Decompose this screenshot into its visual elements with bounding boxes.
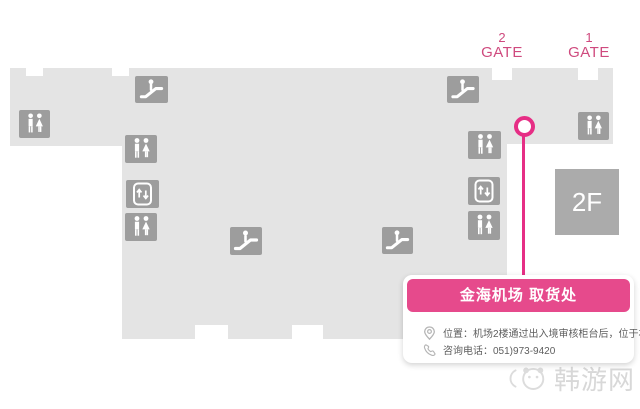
escalator-icon bbox=[382, 227, 413, 254]
phone-text: 咨询电话：051)973-9420 bbox=[443, 342, 555, 357]
elevator-icon bbox=[468, 177, 500, 205]
map-notch-gate-1 bbox=[578, 68, 598, 80]
gate-word: GATE bbox=[480, 45, 524, 61]
map-notch bbox=[112, 68, 129, 76]
map-notch bbox=[195, 325, 228, 339]
elevator-icon bbox=[126, 180, 159, 208]
marker-leader-line bbox=[522, 133, 525, 280]
gate-word: GATE bbox=[567, 45, 611, 61]
watermark: 韩游网 bbox=[505, 361, 635, 395]
gate-1-label: 1 GATE bbox=[567, 30, 611, 61]
location-info-row: 位置：机场2楼通过出入境审核柜台后，位于右侧 bbox=[423, 324, 632, 341]
map-notch-gate-2 bbox=[492, 68, 512, 80]
location-text: 位置：机场2楼通过出入境审核柜台后，位于右侧 bbox=[443, 325, 640, 340]
pickup-location-marker bbox=[514, 116, 535, 137]
watermark-logo-icon bbox=[505, 362, 549, 394]
airport-floor-plan: 2 GATE 1 GATE bbox=[0, 0, 640, 409]
restroom-icon bbox=[125, 213, 157, 241]
gate-2-label: 2 GATE bbox=[480, 30, 524, 61]
pickup-callout-title: 金海机场 取货处 bbox=[407, 279, 630, 312]
pickup-callout-body: 位置：机场2楼通过出入境审核柜台后，位于右侧 咨询电话：051)973-9420 bbox=[409, 319, 632, 361]
pickup-callout-card: 金海机场 取货处 位置：机场2楼通过出入境审核柜台后，位于右侧 咨询电话：051… bbox=[403, 275, 634, 363]
floor-2f-label: 2F bbox=[572, 187, 602, 218]
map-notch bbox=[292, 325, 323, 339]
map-notch bbox=[26, 68, 43, 76]
escalator-icon bbox=[135, 76, 168, 103]
phone-info-row: 咨询电话：051)973-9420 bbox=[423, 341, 632, 358]
phone-icon bbox=[423, 343, 436, 357]
restroom-icon bbox=[468, 211, 500, 240]
gate-number: 2 bbox=[480, 30, 524, 45]
restroom-icon bbox=[125, 135, 157, 163]
location-pin-icon bbox=[423, 325, 436, 341]
restroom-icon bbox=[468, 131, 501, 159]
gate-number: 1 bbox=[567, 30, 611, 45]
escalator-icon bbox=[447, 76, 479, 103]
watermark-text: 韩游网 bbox=[554, 360, 635, 397]
restroom-icon bbox=[578, 112, 609, 140]
restroom-icon bbox=[19, 110, 50, 138]
escalator-icon bbox=[230, 227, 262, 255]
floor-2f-badge: 2F bbox=[555, 169, 619, 235]
